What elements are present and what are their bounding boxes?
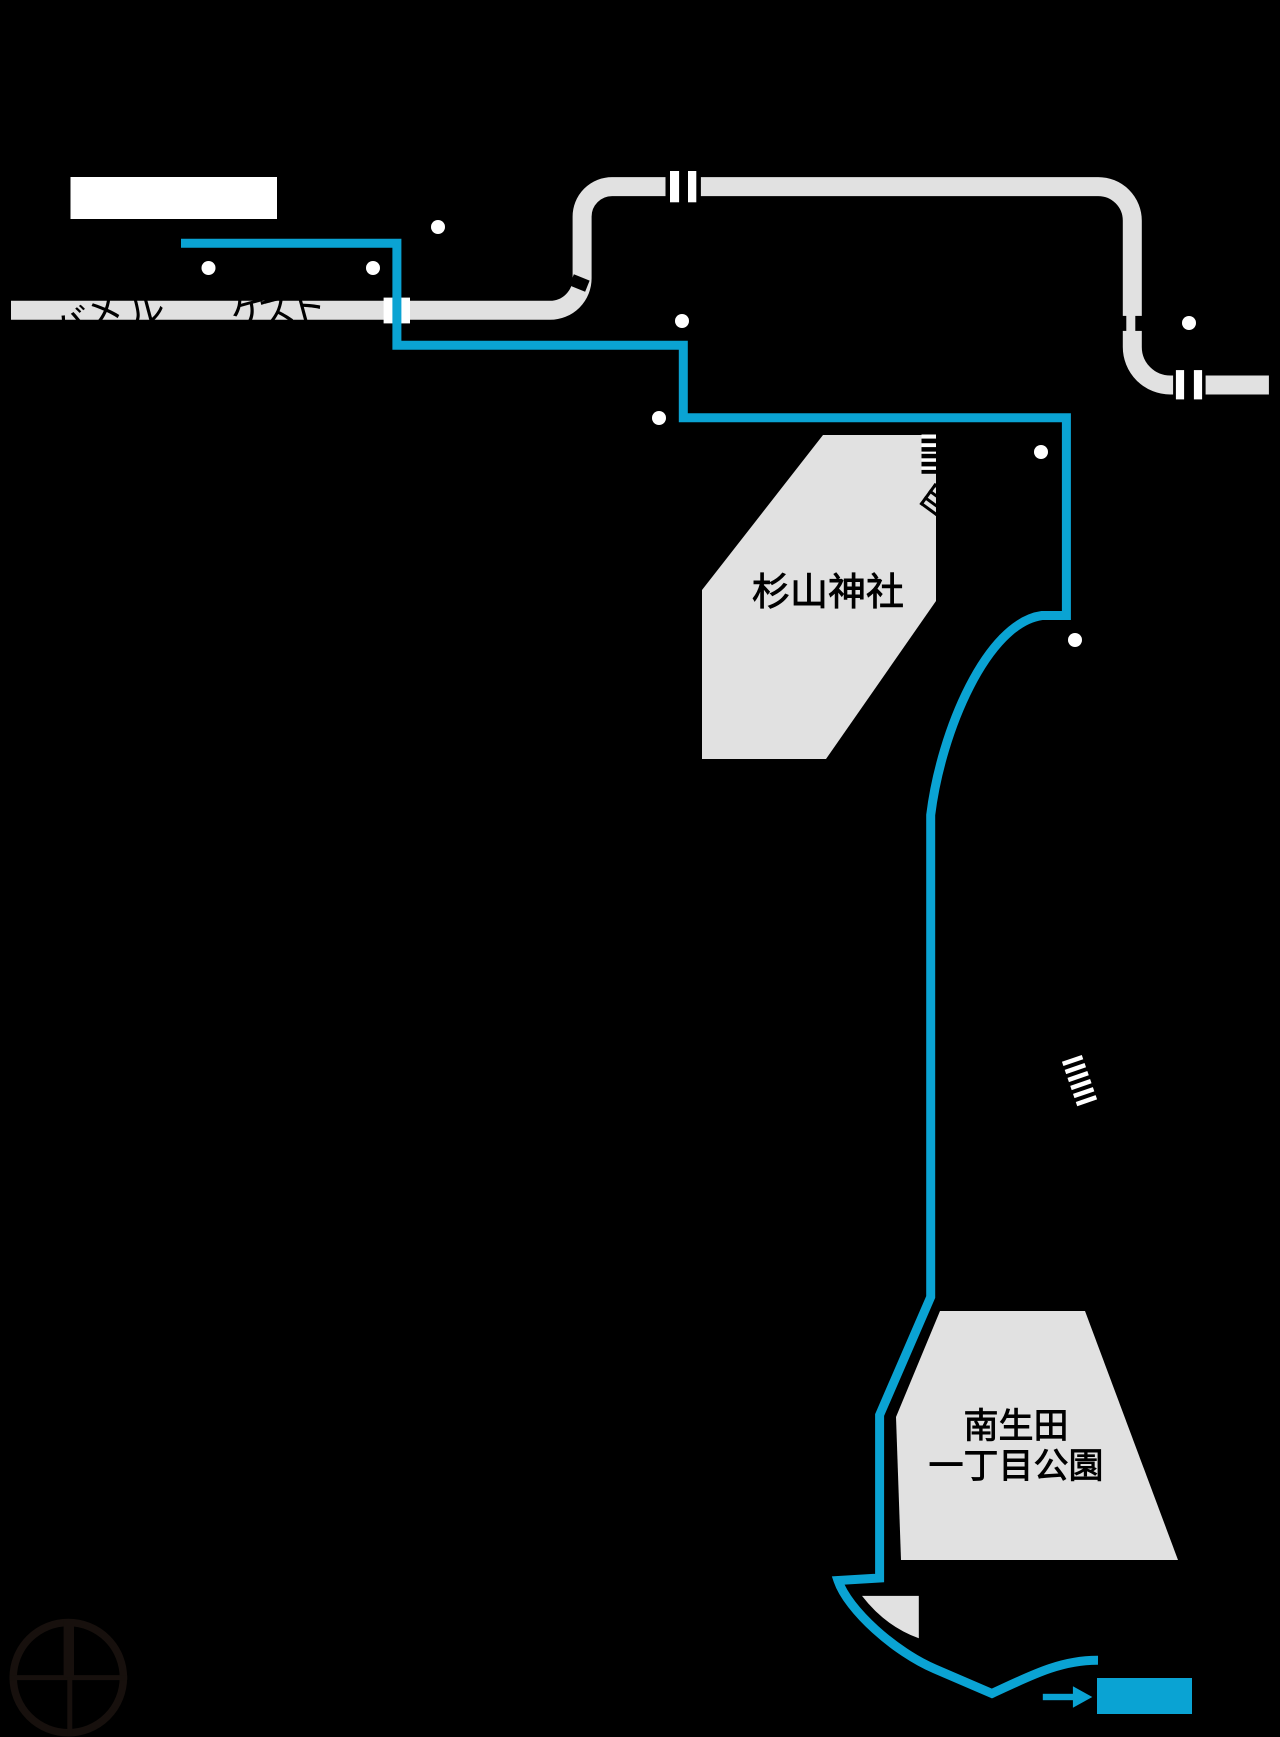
svg-text:南生田: 南生田	[963, 1407, 1068, 1446]
svg-text:一丁目公園: 一丁目公園	[928, 1447, 1103, 1486]
svg-text:杉山神社: 杉山神社	[752, 572, 904, 614]
